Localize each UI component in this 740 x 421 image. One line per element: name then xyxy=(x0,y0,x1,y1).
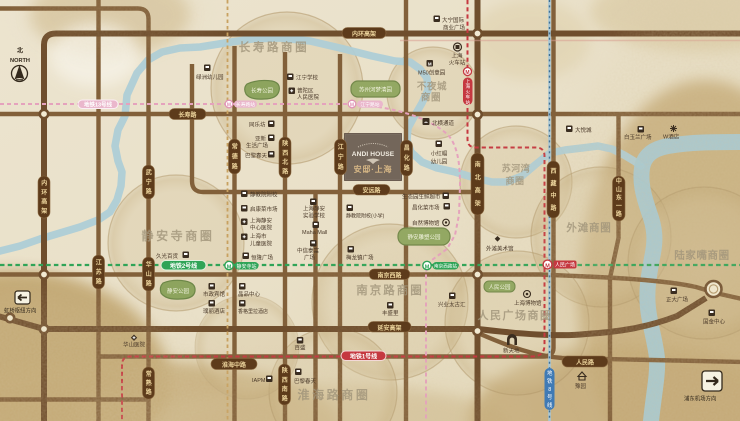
svg-text:M: M xyxy=(545,263,550,269)
svg-text:大悦城: 大悦城 xyxy=(575,126,592,134)
svg-text:中山东一路: 中山东一路 xyxy=(616,177,623,218)
svg-text:北: 北 xyxy=(17,47,23,55)
svg-text:M: M xyxy=(465,70,469,76)
svg-text:自然博物馆: 自然博物馆 xyxy=(412,219,440,227)
svg-text:地铁13号线: 地铁13号线 xyxy=(84,101,113,109)
svg-text:久光百货: 久光百货 xyxy=(156,252,179,260)
svg-text:商业广场: 商业广场 xyxy=(443,24,466,32)
svg-text:陆家嘴商圈: 陆家嘴商圈 xyxy=(674,249,730,262)
svg-text:虹桥枢纽方向: 虹桥枢纽方向 xyxy=(4,307,36,315)
svg-text:中信泰富: 中信泰富 xyxy=(297,247,320,255)
svg-text:上海火车站: 上海火车站 xyxy=(465,78,470,106)
svg-text:上海博物馆: 上海博物馆 xyxy=(514,299,542,307)
svg-text:上海静安: 上海静安 xyxy=(250,217,273,225)
svg-text:静安寺站: 静安寺站 xyxy=(236,263,256,270)
svg-text:淮海中路: 淮海中路 xyxy=(222,361,247,369)
svg-text:静安雕塑公园: 静安雕塑公园 xyxy=(407,233,441,241)
svg-text:江宁路: 江宁路 xyxy=(338,143,345,171)
svg-text:延安高架: 延安高架 xyxy=(376,324,401,332)
svg-text:ANDI HOUSE: ANDI HOUSE xyxy=(352,151,395,158)
svg-text:江苏路: 江苏路 xyxy=(96,258,103,285)
svg-text:北横通道: 北横通道 xyxy=(432,119,455,127)
svg-text:生态园生鲜超市: 生态园生鲜超市 xyxy=(402,193,441,201)
svg-text:武宁路: 武宁路 xyxy=(146,168,153,195)
svg-text:大宁国际: 大宁国际 xyxy=(442,16,465,24)
svg-text:内环高架: 内环高架 xyxy=(352,30,376,38)
svg-text:绿洲幼儿园: 绿洲幼儿园 xyxy=(196,73,224,81)
svg-text:M: M xyxy=(227,103,231,109)
svg-text:长寿路站: 长寿路站 xyxy=(236,101,255,108)
svg-text:人民公园: 人民公园 xyxy=(488,284,511,291)
svg-text:百盛: 百盛 xyxy=(294,344,306,352)
svg-text:恒隆广场: 恒隆广场 xyxy=(251,254,274,262)
svg-text:商圈: 商圈 xyxy=(505,175,524,186)
svg-text:地铁1号线: 地铁1号线 xyxy=(350,352,377,360)
svg-text:南京路商圈: 南京路商圈 xyxy=(356,283,424,297)
svg-text:火车站: 火车站 xyxy=(449,59,466,67)
svg-text:同乐坊: 同乐坊 xyxy=(249,121,266,129)
svg-text:新天地: 新天地 xyxy=(503,347,520,355)
svg-text:安邸·上海: 安邸·上海 xyxy=(354,164,393,174)
svg-text:M: M xyxy=(350,103,354,109)
svg-text:儿童医院: 儿童医院 xyxy=(250,240,273,248)
svg-text:商圈: 商圈 xyxy=(421,92,441,104)
svg-text:人民路: 人民路 xyxy=(576,358,595,366)
svg-text:巴黎春天: 巴黎春天 xyxy=(245,152,268,160)
svg-text:晶品中心: 晶品中心 xyxy=(238,290,261,298)
svg-text:巴黎春天: 巴黎春天 xyxy=(294,377,317,385)
svg-text:地铁2号线: 地铁2号线 xyxy=(170,262,197,270)
svg-text:M: M xyxy=(227,264,232,270)
svg-text:外滩商圈: 外滩商圈 xyxy=(565,221,611,234)
svg-text:国金中心: 国金中心 xyxy=(703,318,726,326)
svg-text:上海静安: 上海静安 xyxy=(303,205,326,213)
svg-text:长寿路: 长寿路 xyxy=(178,111,197,119)
svg-text:淮海路商圈: 淮海路商圈 xyxy=(297,387,370,402)
svg-text:实验学校: 实验学校 xyxy=(303,212,326,220)
svg-text:梅龙镇广场: 梅龙镇广场 xyxy=(346,254,374,262)
svg-text:广场: 广场 xyxy=(304,254,316,262)
svg-text:W酒店: W酒店 xyxy=(663,133,680,141)
svg-text:外滩美术馆: 外滩美术馆 xyxy=(486,245,514,253)
svg-text:华山医院: 华山医院 xyxy=(123,341,146,349)
svg-text:江宁学校: 江宁学校 xyxy=(296,74,319,82)
svg-text:小红帽: 小红帽 xyxy=(431,150,448,158)
svg-text:市政宾馆: 市政宾馆 xyxy=(203,290,226,298)
svg-text:M: M xyxy=(428,61,432,66)
svg-text:丰盛里: 丰盛里 xyxy=(382,309,399,317)
svg-text:兴业太古汇: 兴业太古汇 xyxy=(438,301,466,309)
svg-text:静教院附校: 静教院附校 xyxy=(250,191,278,199)
svg-text:亚新: 亚新 xyxy=(255,135,267,143)
svg-text:苏州河梦清园: 苏州河梦清园 xyxy=(359,86,393,94)
svg-text:上海市: 上海市 xyxy=(250,232,267,240)
svg-text:人民广场: 人民广场 xyxy=(555,262,575,269)
svg-text:人民医院: 人民医院 xyxy=(297,93,320,101)
svg-text:普陀区: 普陀区 xyxy=(297,87,314,95)
svg-text:长寿公园: 长寿公园 xyxy=(251,87,274,95)
svg-text:香格里拉酒店: 香格里拉酒店 xyxy=(238,308,268,315)
svg-text:安远路: 安远路 xyxy=(362,187,381,195)
svg-text:M50创意园: M50创意园 xyxy=(418,69,446,77)
svg-text:常熟路: 常熟路 xyxy=(146,370,153,396)
svg-text:南京西路站: 南京西路站 xyxy=(434,263,457,270)
svg-text:不夜城: 不夜城 xyxy=(417,81,447,93)
svg-text:上海: 上海 xyxy=(451,52,463,60)
svg-text:苏河湾: 苏河湾 xyxy=(502,163,531,174)
svg-text:人民广场商圈: 人民广场商圈 xyxy=(478,308,553,322)
svg-text:IAPM: IAPM xyxy=(252,378,266,384)
svg-text:华山路: 华山路 xyxy=(146,260,153,287)
svg-text:常德路: 常德路 xyxy=(231,143,239,171)
svg-text:静安寺商圈: 静安寺商圈 xyxy=(141,228,214,243)
svg-text:浦东机场方向: 浦东机场方向 xyxy=(684,395,716,403)
svg-text:Maha Mall: Maha Mall xyxy=(302,230,327,236)
svg-text:中心医院: 中心医院 xyxy=(250,224,273,232)
svg-text:豫园: 豫园 xyxy=(575,382,587,390)
svg-text:幼儿园: 幼儿园 xyxy=(431,158,448,166)
svg-text:南京西路: 南京西路 xyxy=(377,271,402,279)
svg-text:长寿路商圈: 长寿路商圈 xyxy=(239,40,310,54)
svg-text:静教院附校(小学): 静教院附校(小学) xyxy=(346,213,385,220)
svg-text:NORTH: NORTH xyxy=(10,58,30,64)
svg-text:正大广场: 正大广场 xyxy=(666,296,689,304)
svg-text:昌化路: 昌化路 xyxy=(404,144,411,172)
svg-text:启康菜市场: 启康菜市场 xyxy=(250,205,278,213)
svg-text:M: M xyxy=(425,264,430,270)
svg-text:昌化菜市场: 昌化菜市场 xyxy=(412,204,440,212)
svg-text:江宁路站: 江宁路站 xyxy=(360,101,379,108)
svg-text:璞丽酒店: 璞丽酒店 xyxy=(203,307,226,315)
svg-text:生活广场: 生活广场 xyxy=(246,142,269,150)
svg-text:静安公园: 静安公园 xyxy=(167,287,190,295)
svg-text:白玉兰广场: 白玉兰广场 xyxy=(624,133,652,141)
